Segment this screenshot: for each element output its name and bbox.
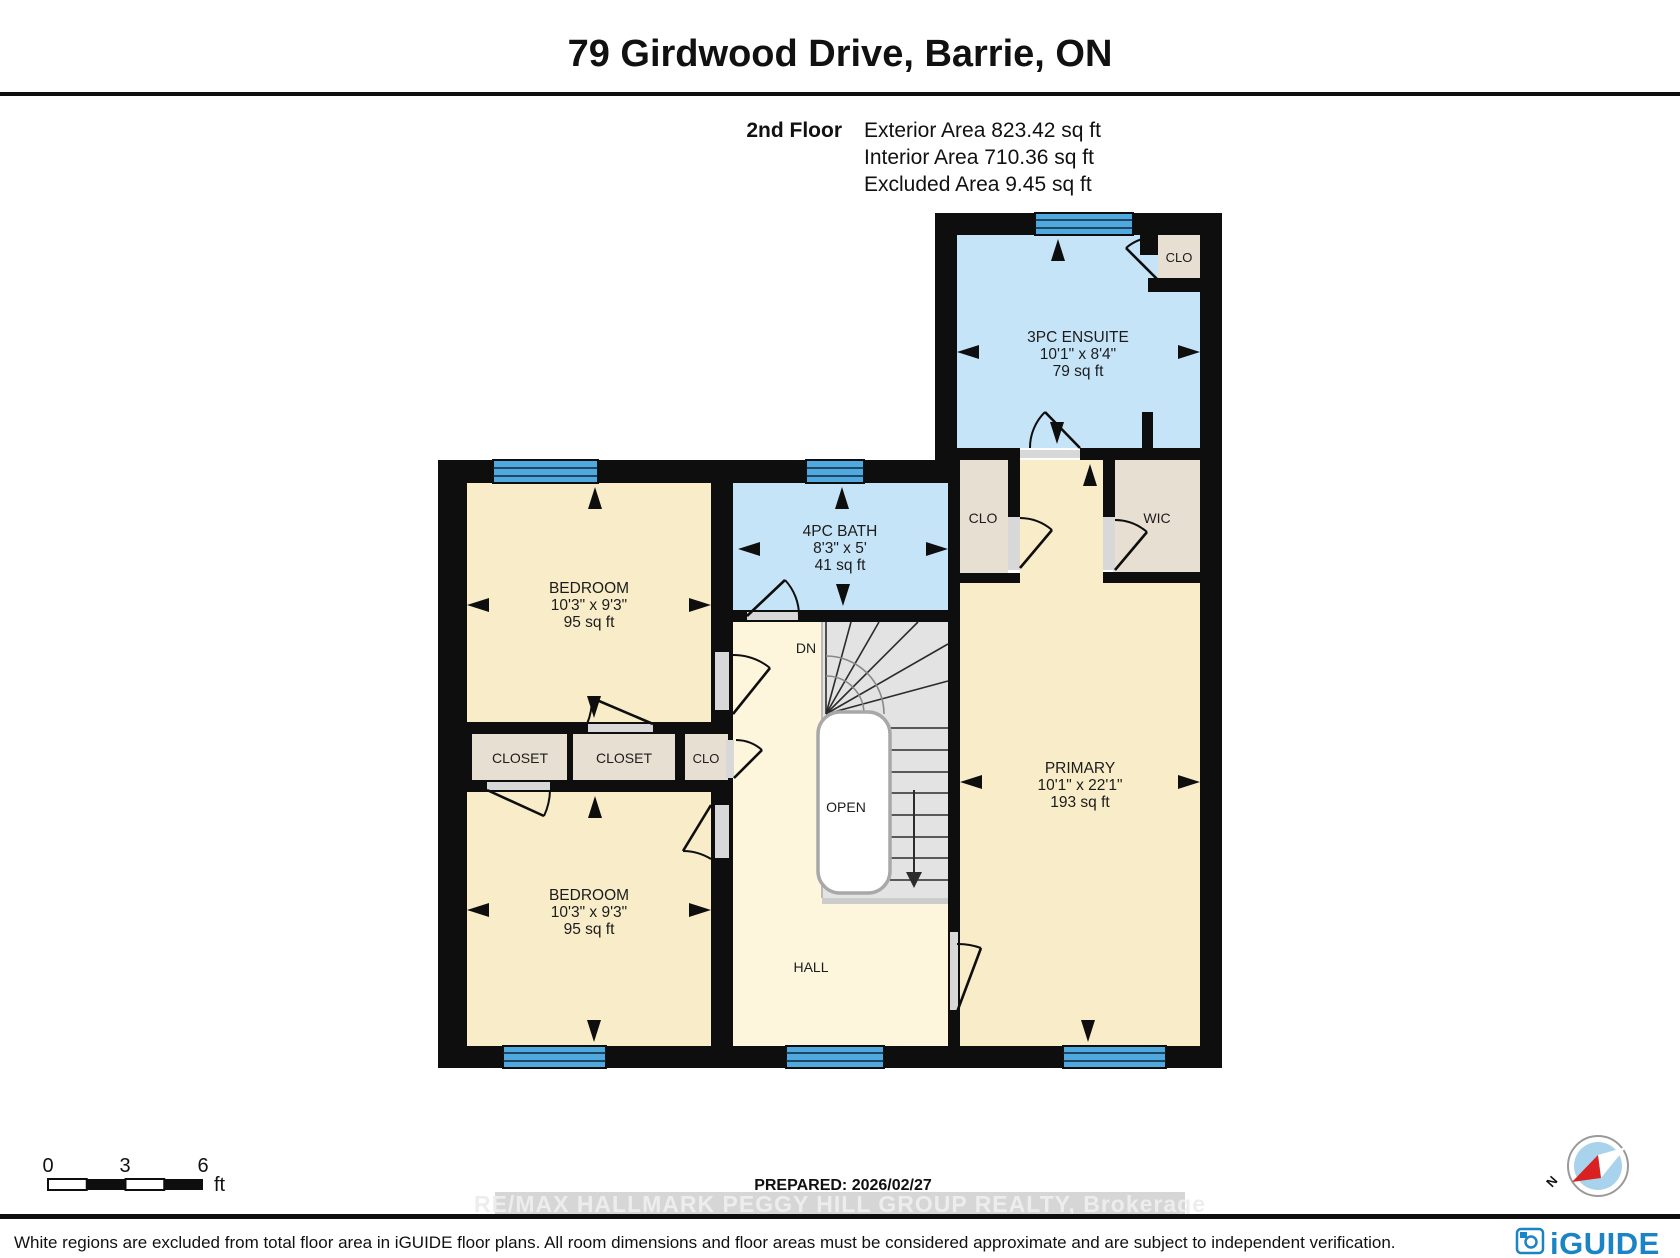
- window-bedroom-bottom: [503, 1046, 606, 1068]
- bedroom-bottom-dims: 10'3" x 9'3": [551, 904, 627, 921]
- footer: 0 3 6 ft RE/MAX HALLMARK PEGGY HILL GROU…: [0, 1136, 1680, 1258]
- floor-plan-canvas: 79 Girdwood Drive, Barrie, ON 2nd Floor …: [0, 0, 1680, 1258]
- iguide-logo: iGUIDE: [1517, 1226, 1660, 1258]
- stat-exterior: Exterior Area 823.42 sq ft: [864, 119, 1101, 142]
- bedroom-bottom-area: 95 sq ft: [564, 921, 616, 938]
- scale-tick-6: 6: [197, 1155, 208, 1177]
- scale-tick-0: 0: [42, 1155, 53, 1177]
- bath-area: 41 sq ft: [815, 557, 867, 574]
- disclaimer-text: White regions are excluded from total fl…: [14, 1233, 1396, 1252]
- scale-tick-3: 3: [119, 1155, 130, 1177]
- hall-label: HALL: [793, 959, 828, 975]
- ensuite-name: 3PC ENSUITE: [1027, 329, 1129, 346]
- camera-icon-tab: [1520, 1232, 1527, 1238]
- compass-north-label: N: [1543, 1173, 1560, 1190]
- bedroom-top-area: 95 sq ft: [564, 614, 616, 631]
- camera-icon-lens: [1526, 1237, 1537, 1248]
- primary-area: 193 sq ft: [1050, 794, 1110, 811]
- scale-unit: ft: [214, 1174, 226, 1196]
- brokerage-watermark: RE/MAX HALLMARK PEGGY HILL GROUP REALTY,…: [474, 1191, 1206, 1217]
- primary-floor: [960, 583, 1200, 1046]
- bedroom-top-dims: 10'3" x 9'3": [551, 597, 627, 614]
- closet2-label: CLOSET: [596, 750, 652, 766]
- primary-dims: 10'1" x 22'1": [1037, 777, 1122, 794]
- clo-primary-label: CLO: [969, 510, 998, 526]
- window-bedroom-top: [493, 460, 598, 483]
- prepared-date: PREPARED: 2026/02/27: [754, 1177, 932, 1194]
- floor-plan-page: 79 Girdwood Drive, Barrie, ON 2nd Floor …: [0, 0, 1680, 1258]
- stat-interior: Interior Area 710.36 sq ft: [864, 146, 1094, 169]
- ensuite-dims: 10'1" x 8'4": [1040, 346, 1116, 363]
- bedroom-top-name: BEDROOM: [549, 580, 629, 597]
- floor-label: 2nd Floor: [746, 119, 842, 142]
- window-hall-bottom: [786, 1046, 884, 1068]
- window-primary-bottom: [1063, 1046, 1166, 1068]
- window-ensuite-top: [1035, 213, 1133, 235]
- footer-divider: [0, 1214, 1680, 1219]
- closet1-label: CLOSET: [492, 750, 548, 766]
- stat-excluded: Excluded Area 9.45 sq ft: [864, 173, 1092, 196]
- down-label: DN: [796, 640, 816, 656]
- page-title: 79 Girdwood Drive, Barrie, ON: [568, 33, 1113, 75]
- header-divider: [0, 92, 1680, 96]
- scale-bar: 0 3 6 ft: [42, 1155, 225, 1196]
- stair-bottom-edge: [822, 898, 948, 904]
- staircase: [818, 622, 948, 904]
- window-bath-top: [806, 460, 864, 483]
- clo-ensuite-label: CLO: [1166, 250, 1193, 265]
- primary-name: PRIMARY: [1045, 760, 1115, 777]
- bath-dims: 8'3" x 5': [813, 540, 867, 557]
- wic-label: WIC: [1143, 510, 1170, 526]
- open-label: OPEN: [826, 799, 866, 815]
- clo-hall-label: CLO: [693, 751, 720, 766]
- ensuite-area: 79 sq ft: [1053, 363, 1105, 380]
- bedroom-bottom-name: BEDROOM: [549, 887, 629, 904]
- header: 79 Girdwood Drive, Barrie, ON 2nd Floor …: [0, 33, 1680, 196]
- brand-wordmark: iGUIDE: [1550, 1226, 1660, 1258]
- compass: N: [1543, 1136, 1628, 1196]
- bath-name: 4PC BATH: [803, 523, 878, 540]
